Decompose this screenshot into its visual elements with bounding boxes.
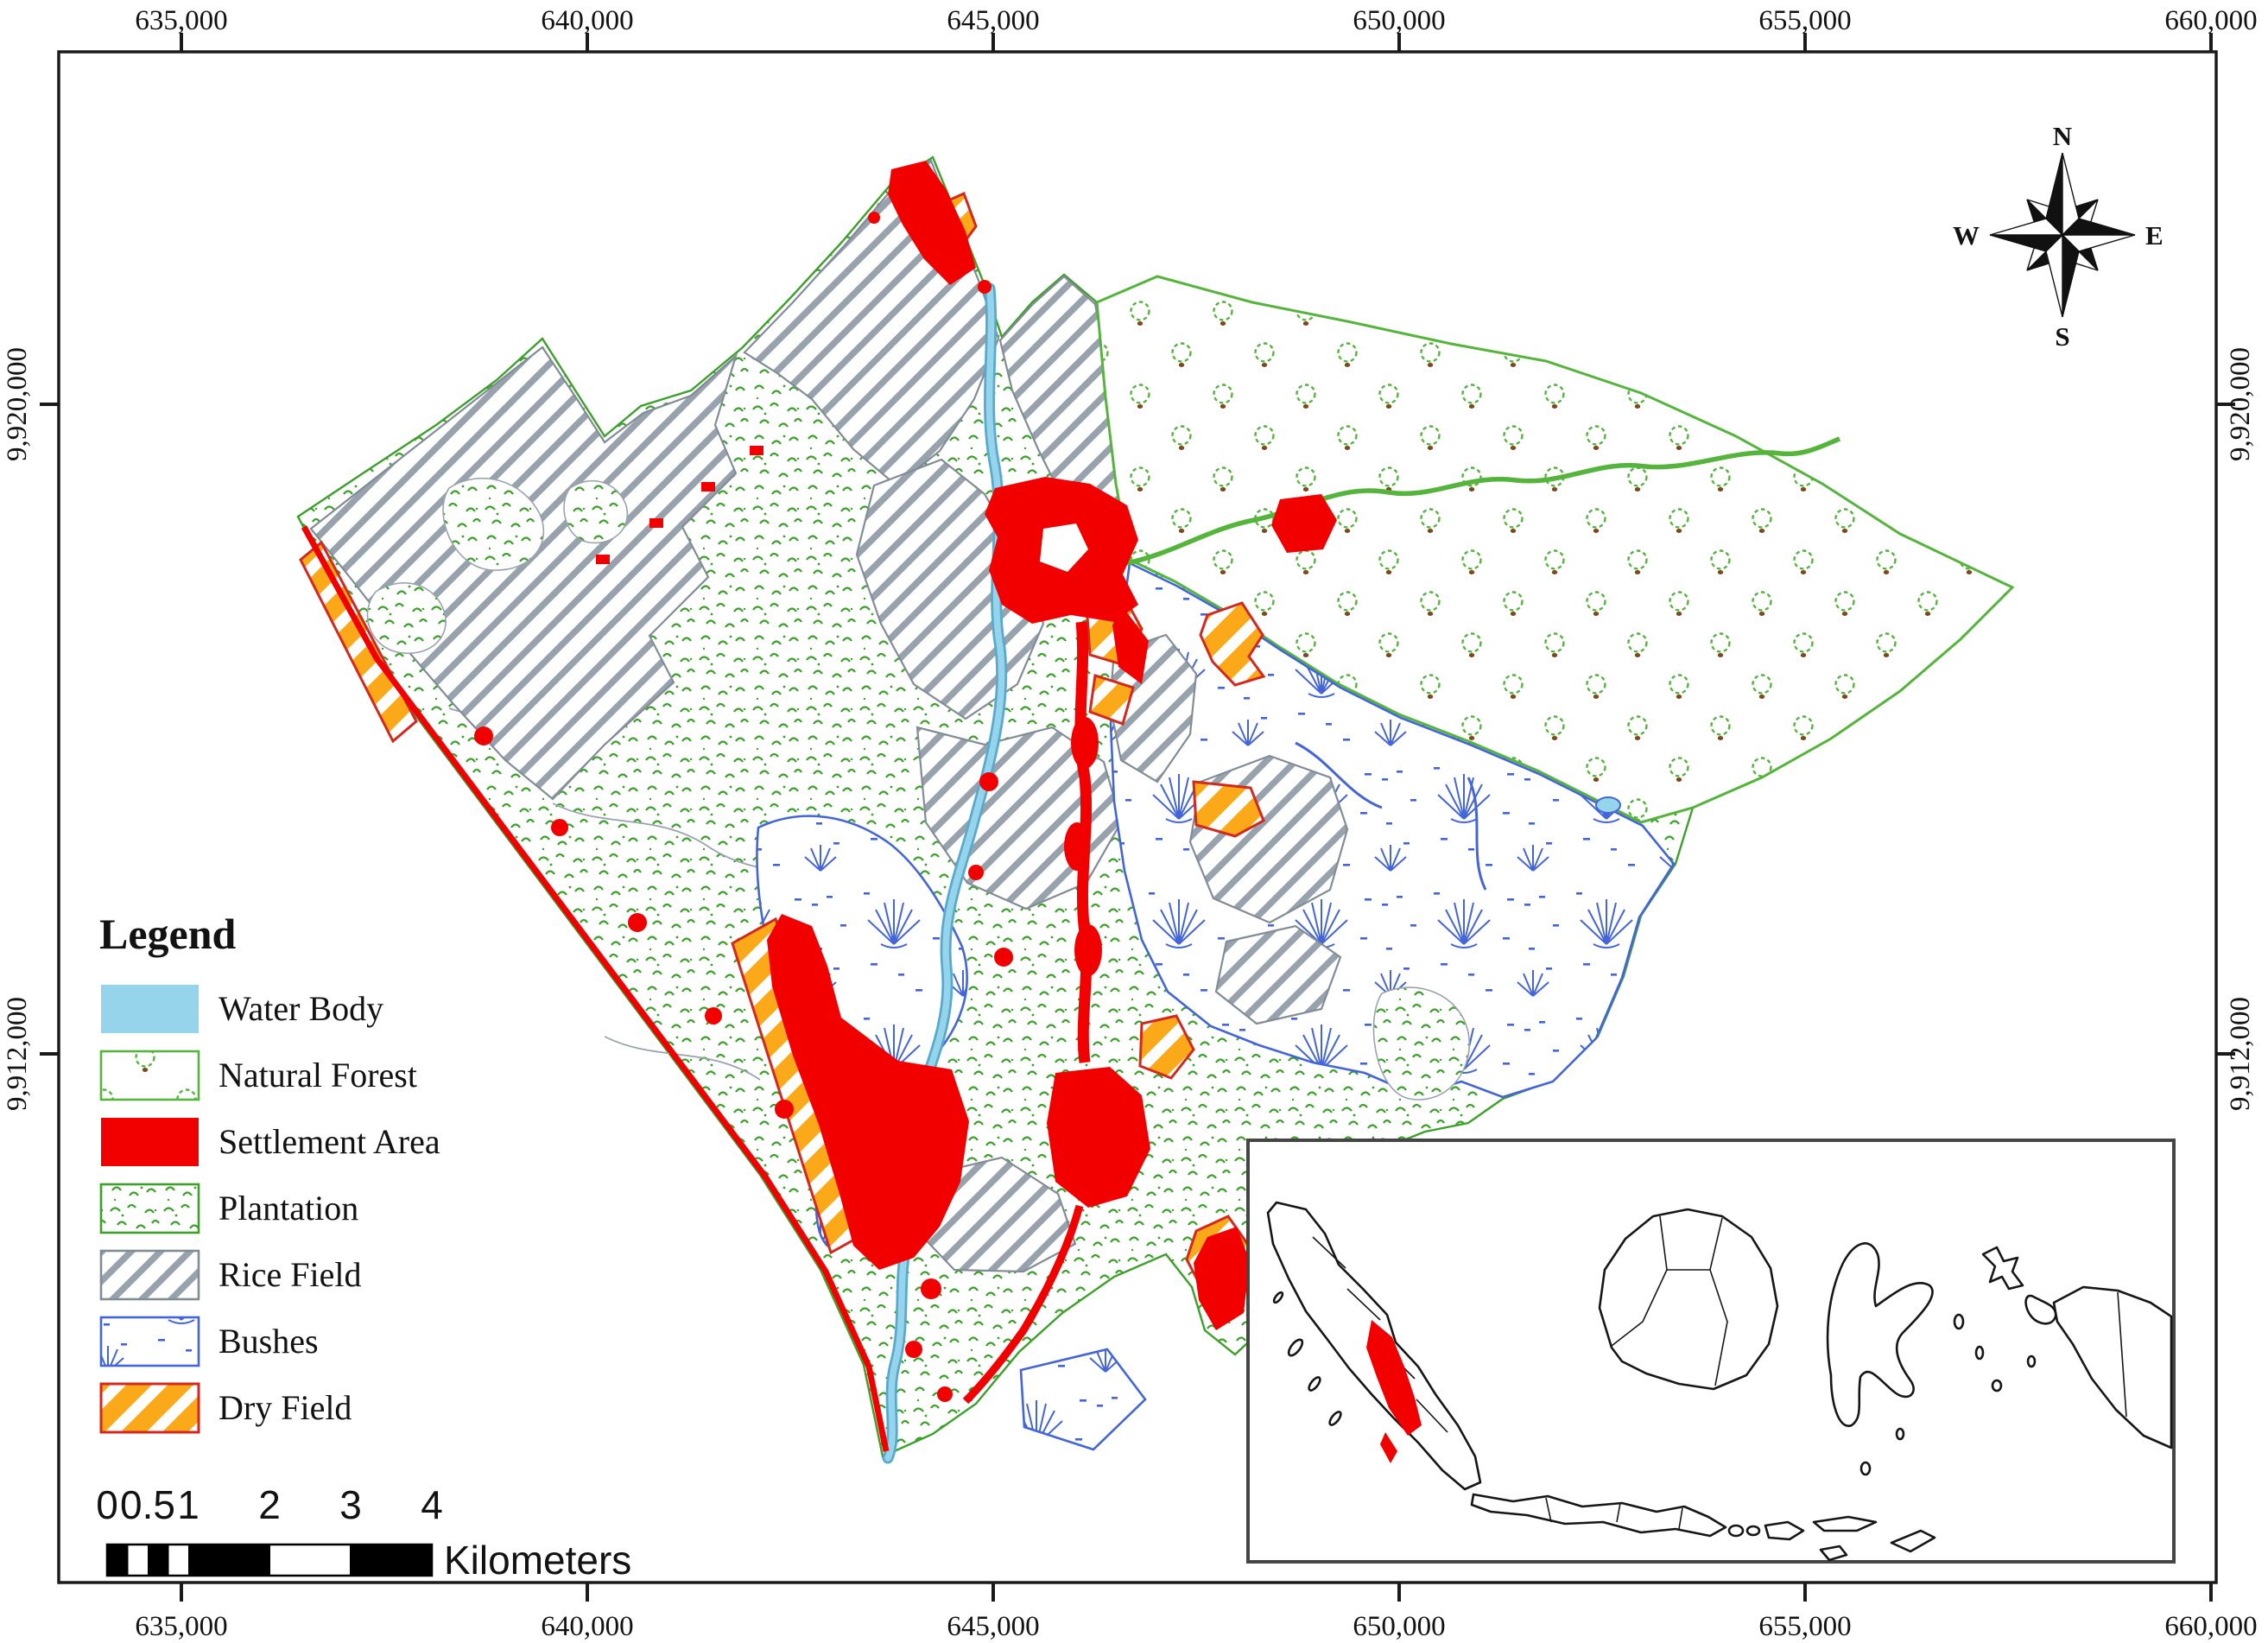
natural-forest-swatch <box>101 1051 199 1100</box>
plantation-swatch <box>101 1184 199 1233</box>
x-axis-label-top: 640,000 <box>541 5 633 36</box>
scale-unit: Kilometers <box>444 1538 631 1583</box>
y-axis-label-left: 9,912,000 <box>2 997 33 1111</box>
x-axis-label-top: 645,000 <box>947 5 1039 36</box>
scale-label: 0 <box>96 1482 118 1527</box>
rice-field-swatch <box>101 1251 199 1299</box>
legend-label: Settlement Area <box>219 1122 440 1161</box>
dry-field-swatch <box>101 1384 199 1432</box>
legend-label: Natural Forest <box>219 1056 417 1094</box>
settlement-area-swatch <box>101 1118 199 1166</box>
bushes-region <box>1021 1349 1145 1450</box>
water-body-swatch <box>101 985 199 1033</box>
legend-item-dry-field: Dry Field <box>101 1384 352 1432</box>
compass-rose: N E S W <box>1953 121 2163 352</box>
legend-item-bushes: Bushes <box>101 1317 319 1366</box>
scale-label: 2 <box>258 1482 281 1527</box>
scale-label: 4 <box>421 1482 443 1527</box>
legend-label: Water Body <box>219 989 383 1028</box>
legend-item-plantation: Plantation <box>101 1184 358 1233</box>
legend-label: Plantation <box>219 1189 358 1227</box>
y-axis-label-right: 9,912,000 <box>2225 997 2256 1111</box>
compass-north-label: N <box>2053 121 2072 151</box>
y-axis-label-right: 9,920,000 <box>2225 347 2256 461</box>
bushes-swatch <box>101 1317 199 1366</box>
x-axis-label-top: 655,000 <box>1758 5 1851 36</box>
x-axis-label-bottom: 650,000 <box>1353 1611 1445 1642</box>
legend: Legend Water Body Natural Forest Settlem… <box>99 910 440 1432</box>
x-axis-label-bottom: 655,000 <box>1758 1611 1851 1642</box>
x-axis-label-bottom: 660,000 <box>2164 1611 2257 1642</box>
legend-item-settlement-area: Settlement Area <box>101 1118 440 1166</box>
inset-map <box>1248 1140 2174 1562</box>
compass-west-label: W <box>1953 220 1980 251</box>
legend-item-water-body: Water Body <box>101 985 383 1033</box>
legend-label: Bushes <box>219 1322 319 1361</box>
x-axis-label-bottom: 645,000 <box>947 1611 1039 1642</box>
x-axis-label-top: 635,000 <box>135 5 227 36</box>
legend-label: Dry Field <box>219 1388 352 1427</box>
compass-south-label: S <box>2055 321 2069 352</box>
scale-label: 0.5 <box>120 1482 175 1527</box>
scale-label: 3 <box>339 1482 362 1527</box>
legend-item-natural-forest: Natural Forest <box>101 1051 417 1100</box>
x-axis-label-bottom: 635,000 <box>135 1611 227 1642</box>
x-axis-label-bottom: 640,000 <box>541 1611 633 1642</box>
x-axis-label-top: 660,000 <box>2164 5 2257 36</box>
y-axis-label-left: 9,920,000 <box>2 347 33 461</box>
compass-east-label: E <box>2145 220 2163 251</box>
legend-label: Rice Field <box>219 1255 362 1294</box>
x-axis-label-top: 650,000 <box>1353 5 1445 36</box>
pond <box>1596 797 1620 813</box>
scale-label: 1 <box>177 1482 200 1527</box>
landuse-map-figure: 635,000 640,000 645,000 650,000 655,000 … <box>0 0 2268 1643</box>
legend-item-rice-field: Rice Field <box>101 1251 362 1299</box>
scale-bar-segments <box>107 1545 432 1576</box>
scale-bar: 0 0.5 1 2 3 4 Kilometers <box>96 1482 631 1583</box>
legend-title: Legend <box>99 910 237 958</box>
